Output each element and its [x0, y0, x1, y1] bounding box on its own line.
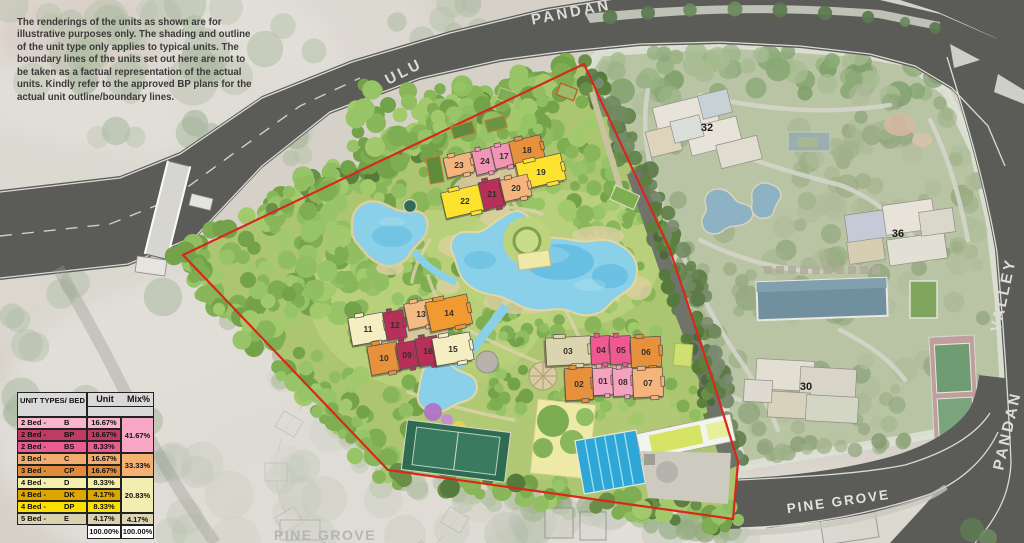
- svg-text:19: 19: [536, 167, 546, 177]
- svg-text:01: 01: [598, 376, 608, 386]
- svg-text:08: 08: [618, 377, 628, 387]
- svg-text:07: 07: [643, 378, 653, 388]
- svg-text:06: 06: [641, 347, 651, 357]
- svg-text:02: 02: [574, 379, 584, 389]
- svg-text:21: 21: [487, 189, 497, 199]
- svg-text:20: 20: [511, 183, 521, 193]
- svg-text:05: 05: [616, 345, 626, 355]
- svg-text:14: 14: [444, 308, 454, 318]
- svg-text:30: 30: [800, 381, 812, 393]
- svg-text:15: 15: [448, 344, 458, 354]
- svg-text:22: 22: [460, 196, 470, 206]
- svg-text:13: 13: [416, 309, 426, 319]
- svg-text:12: 12: [390, 320, 400, 330]
- svg-text:09: 09: [402, 350, 412, 360]
- svg-text:04: 04: [596, 345, 606, 355]
- svg-text:18: 18: [522, 145, 532, 155]
- svg-text:24: 24: [480, 156, 490, 166]
- svg-text:36: 36: [892, 228, 904, 240]
- svg-text:03: 03: [563, 346, 573, 356]
- svg-text:11: 11: [364, 324, 373, 334]
- svg-text:PINE GROVE: PINE GROVE: [274, 527, 376, 543]
- svg-text:10: 10: [379, 353, 389, 363]
- svg-text:23: 23: [454, 160, 464, 170]
- svg-text:17: 17: [499, 151, 509, 161]
- svg-text:32: 32: [701, 122, 713, 134]
